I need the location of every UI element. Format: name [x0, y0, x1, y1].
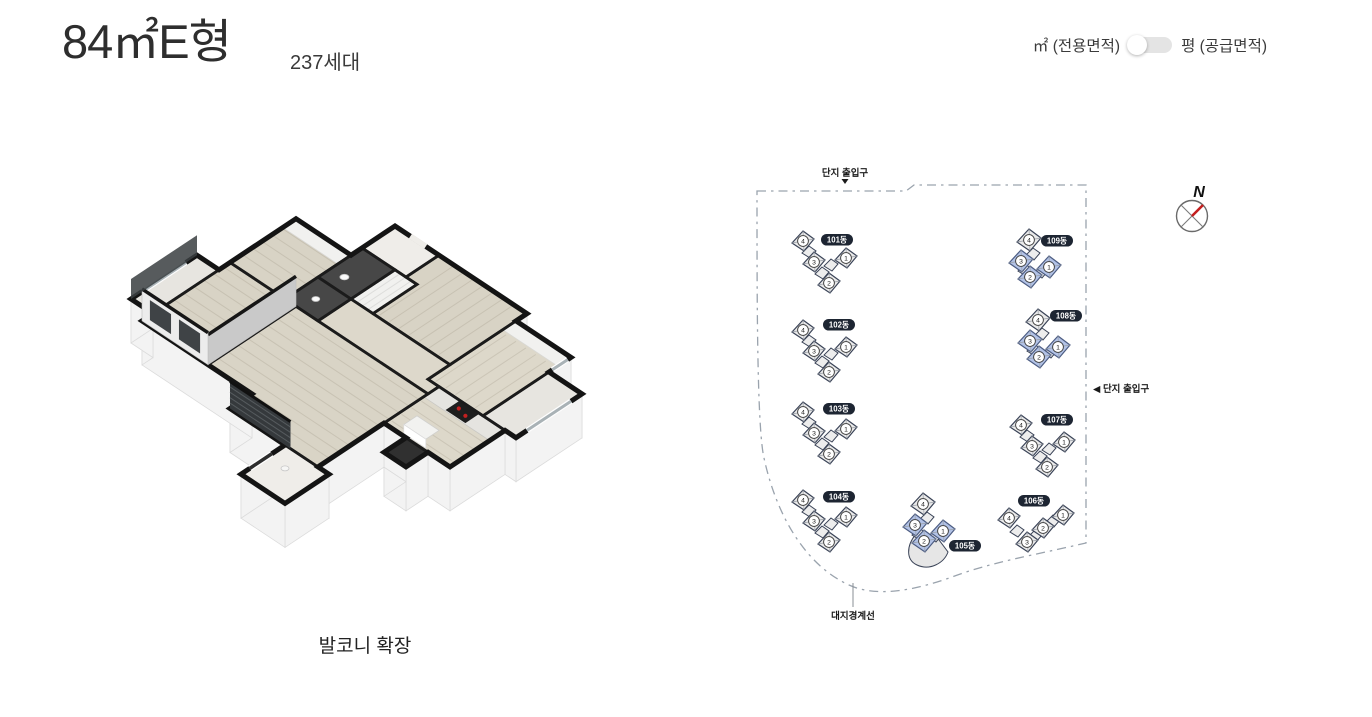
area-toggle-right-label: 평 (공급면적) [1181, 34, 1267, 56]
unit-number: 3 [1025, 539, 1029, 546]
building-108동: 4321108동 [1018, 309, 1082, 368]
unit-number: 4 [921, 501, 925, 508]
unit-number: 1 [1056, 344, 1060, 351]
stove-burner [463, 414, 467, 418]
header: 84㎡E형 237세대 [62, 14, 231, 70]
unit-number: 1 [844, 344, 848, 351]
unit-number: 2 [827, 369, 831, 376]
unit-number: 1 [844, 426, 848, 433]
compass-n-label: N [1193, 184, 1205, 201]
unit-number: 3 [812, 518, 816, 525]
unit-number: 1 [844, 514, 848, 521]
stove-burner [457, 406, 461, 410]
unit-number: 2 [1037, 354, 1041, 361]
unit-number: 4 [1036, 317, 1040, 324]
right-entrance-label: ◀ 단지 출입구 [1093, 383, 1150, 395]
unit-number: 4 [1027, 237, 1031, 244]
unit-number: 1 [1047, 264, 1051, 271]
unit-number: 2 [1028, 274, 1032, 281]
building-109동: 4321109동 [1009, 229, 1073, 288]
unit-number: 4 [801, 497, 805, 504]
building-label: 109동 [1047, 237, 1067, 246]
unit-number: 1 [1061, 512, 1065, 519]
unit-number: 3 [913, 522, 917, 529]
floor-plan-3d [110, 208, 600, 568]
unit-number: 2 [1045, 464, 1049, 471]
unit-number: 3 [1030, 443, 1034, 450]
site-map: 단지 출입구◀ 단지 출입구대지경계선N4321101동4321102동4321… [730, 148, 1270, 678]
switch-knob-icon[interactable] [1127, 35, 1147, 55]
boundary-label: 대지경계선 [831, 610, 875, 622]
unit-number: 2 [827, 451, 831, 458]
unit-number: 4 [1007, 515, 1011, 522]
building-106동: 4321106동 [998, 495, 1074, 552]
unit-number: 4 [801, 327, 805, 334]
unit-number: 2 [827, 539, 831, 546]
unit-number: 4 [801, 409, 805, 416]
unit-number: 1 [844, 255, 848, 262]
down-arrow-icon [842, 179, 849, 184]
unit-number: 4 [801, 238, 805, 245]
building-connector [1010, 525, 1024, 537]
building-label: 101동 [827, 236, 847, 245]
building-107동: 4321107동 [1010, 414, 1075, 477]
compass-icon: N [1177, 184, 1208, 232]
bath3-fixture [281, 466, 289, 471]
building-104동: 4321104동 [792, 490, 857, 552]
building-label: 105동 [955, 542, 975, 551]
building-label: 106동 [1024, 497, 1044, 506]
unit-number: 2 [1041, 525, 1045, 532]
unit-number: 1 [1062, 439, 1066, 446]
unit-number: 3 [812, 430, 816, 437]
area-unit-switch[interactable] [1129, 37, 1172, 53]
floor-plan-caption: 발코니 확장 [240, 631, 490, 658]
top-entrance-label: 단지 출입구 [822, 167, 869, 179]
building-101동: 4321101동 [792, 231, 857, 293]
unit-number: 3 [812, 348, 816, 355]
sink [312, 297, 320, 302]
building-label: 102동 [829, 321, 849, 330]
site-map-group: 단지 출입구◀ 단지 출입구대지경계선N4321101동4321102동4321… [757, 167, 1208, 622]
building-label: 103동 [829, 405, 849, 414]
unit-number: 2 [922, 538, 926, 545]
area-toggle-left-label: ㎡ (전용면적) [1033, 34, 1120, 56]
household-count: 237세대 [290, 46, 360, 75]
unit-number: 2 [827, 280, 831, 287]
unit-number: 4 [1019, 422, 1023, 429]
unit-number: 3 [812, 259, 816, 266]
building-label: 107동 [1047, 416, 1067, 425]
building-label: 108동 [1056, 312, 1076, 321]
building-label: 104동 [829, 493, 849, 502]
unit-number: 3 [1019, 258, 1023, 265]
unit-number: 3 [1028, 338, 1032, 345]
page-title: 84㎡E형 [62, 14, 231, 70]
floor-plan-group [131, 219, 582, 548]
building-105동: 4321105동 [903, 493, 981, 567]
building-102동: 4321102동 [792, 319, 857, 382]
toilet [340, 274, 349, 280]
area-unit-toggle: ㎡ (전용면적) 평 (공급면적) [1033, 34, 1267, 56]
unit-number: 1 [941, 528, 945, 535]
building-103동: 4321103동 [792, 402, 857, 464]
